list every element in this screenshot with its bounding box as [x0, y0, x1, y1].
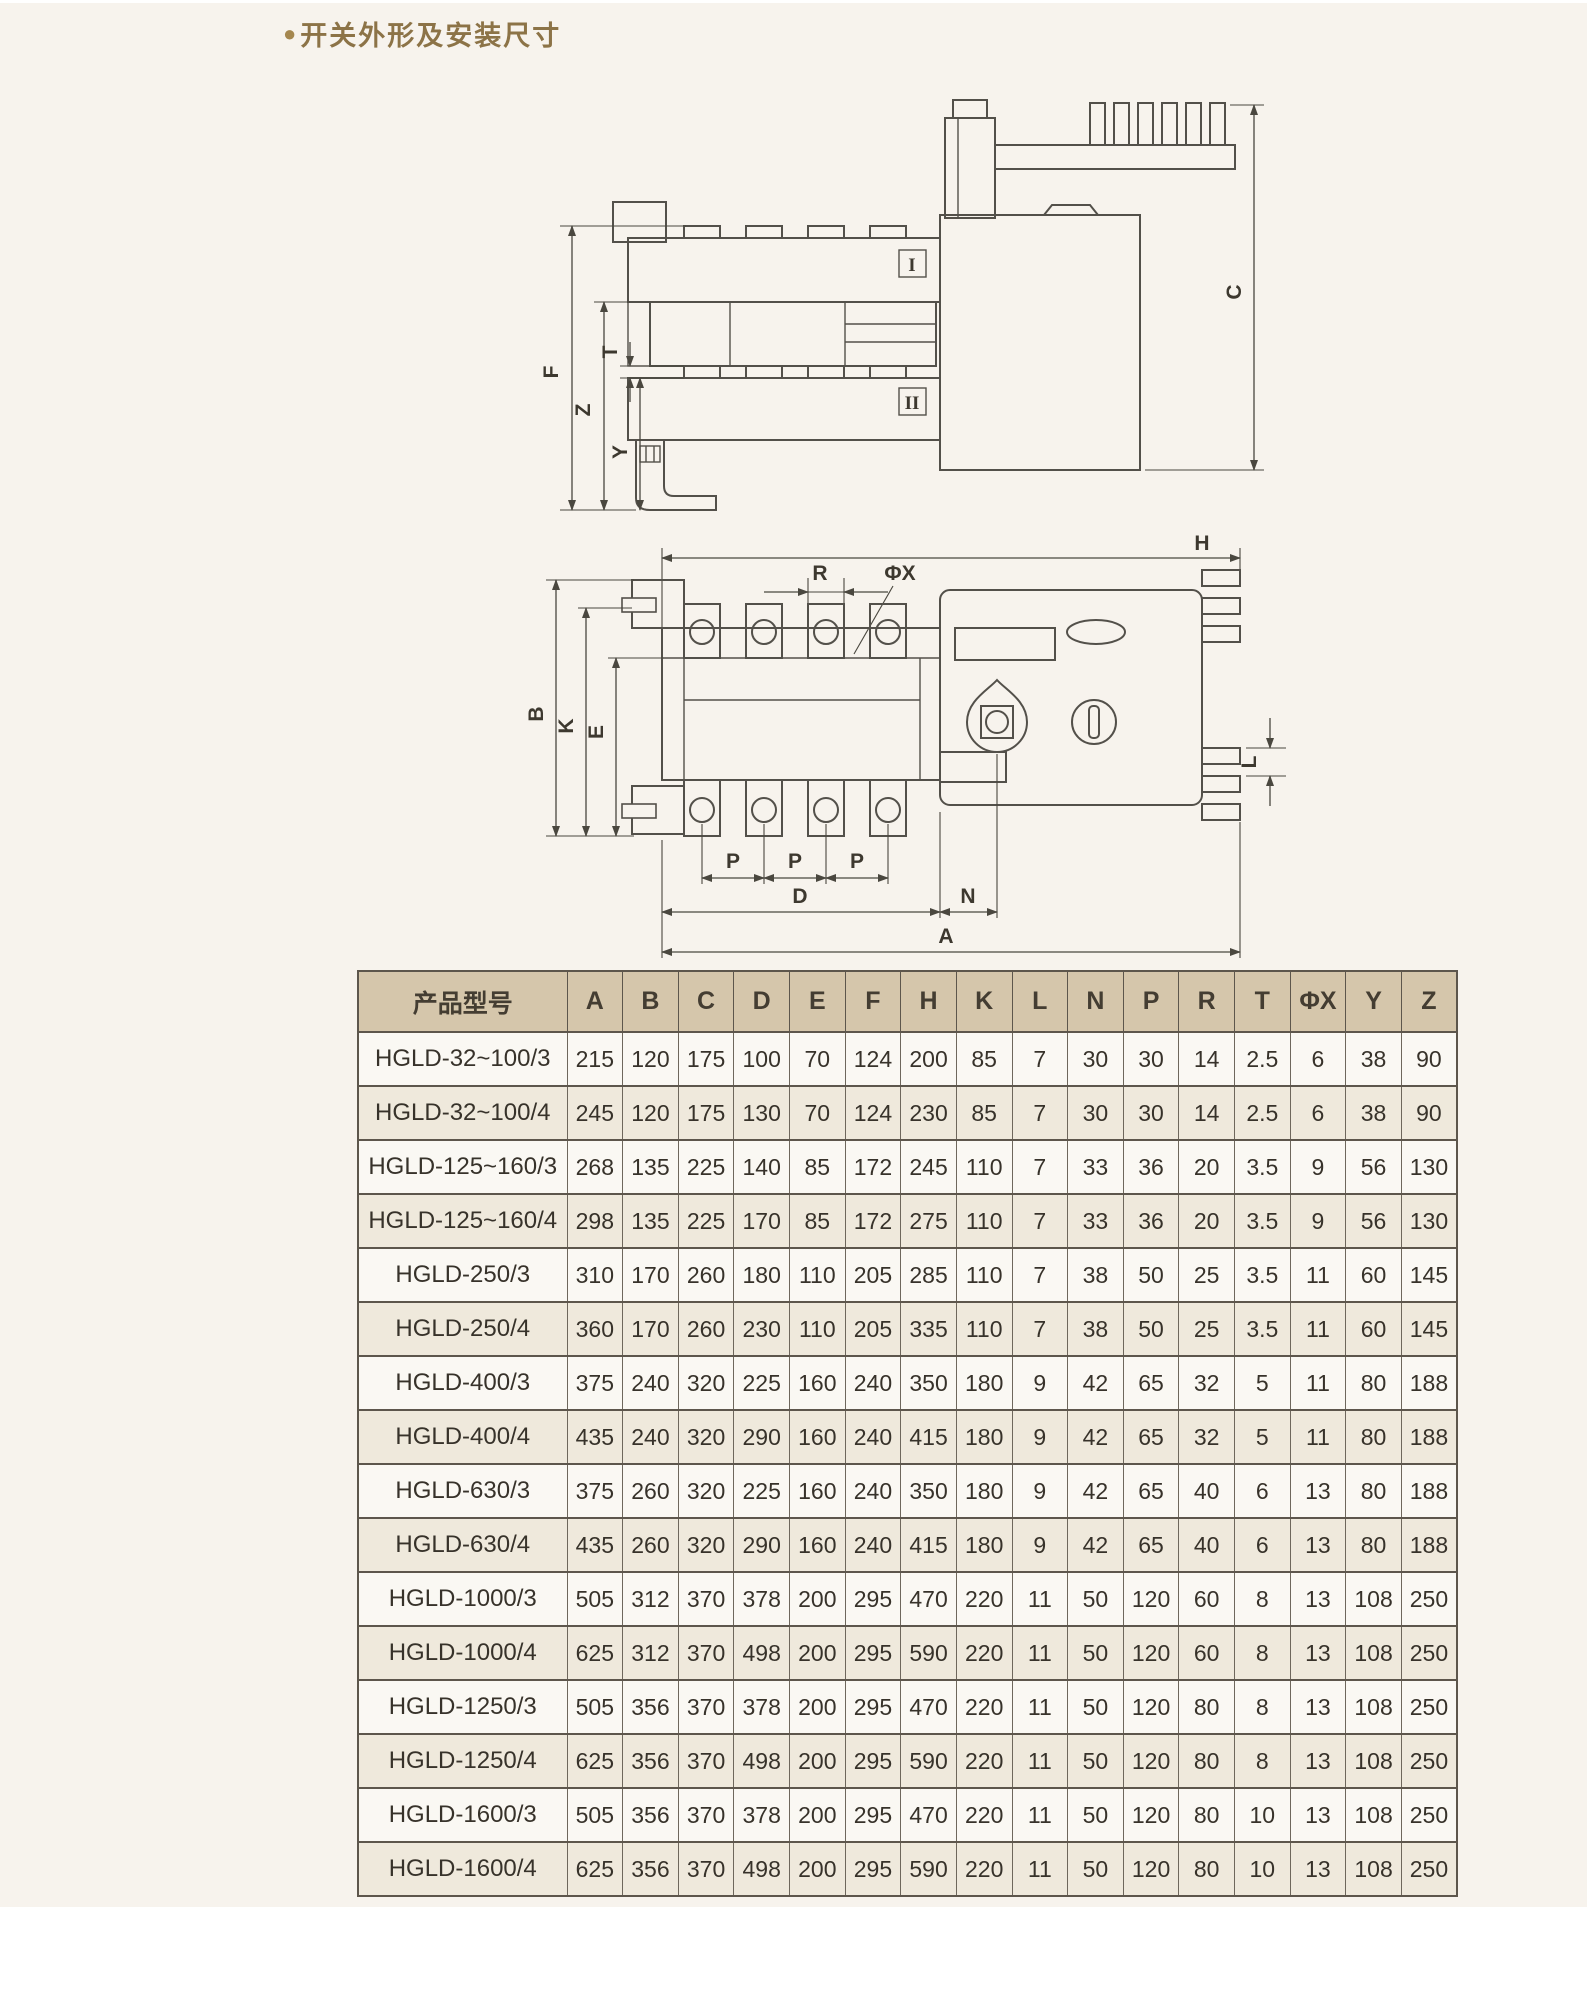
- pole1-label: I: [908, 255, 915, 276]
- value-cell: 110: [956, 1194, 1012, 1248]
- value-cell: 225: [734, 1356, 790, 1410]
- value-cell: 60: [1346, 1248, 1402, 1302]
- value-cell: 85: [790, 1194, 846, 1248]
- model-cell: HGLD-630/4: [358, 1518, 567, 1572]
- nameplate-oval: [1067, 620, 1125, 644]
- value-cell: 33: [1068, 1140, 1124, 1194]
- value-cell: 298: [567, 1194, 623, 1248]
- value-cell: 6: [1290, 1086, 1346, 1140]
- value-cell: 80: [1179, 1788, 1235, 1842]
- value-cell: 375: [567, 1464, 623, 1518]
- value-cell: 170: [623, 1302, 679, 1356]
- value-cell: 505: [567, 1572, 623, 1626]
- table-row: HGLD-630/4435260320290160240415180942654…: [358, 1518, 1457, 1572]
- value-cell: 590: [901, 1842, 957, 1896]
- value-cell: 40: [1179, 1464, 1235, 1518]
- value-cell: 200: [790, 1680, 846, 1734]
- value-cell: 11: [1012, 1626, 1068, 1680]
- value-cell: 42: [1068, 1356, 1124, 1410]
- mounting-bracket: [636, 440, 716, 510]
- value-cell: 7: [1012, 1032, 1068, 1086]
- value-cell: 108: [1346, 1680, 1402, 1734]
- value-cell: 170: [623, 1248, 679, 1302]
- value-cell: 335: [901, 1302, 957, 1356]
- value-cell: 220: [956, 1788, 1012, 1842]
- value-cell: 625: [567, 1734, 623, 1788]
- value-cell: 240: [845, 1464, 901, 1518]
- model-cell: HGLD-250/4: [358, 1302, 567, 1356]
- value-cell: 7: [1012, 1086, 1068, 1140]
- col-header: R: [1179, 971, 1235, 1032]
- value-cell: 10: [1235, 1842, 1291, 1896]
- table-row: HGLD-125~160/326813522514085172245110733…: [358, 1140, 1457, 1194]
- col-header: C: [678, 971, 734, 1032]
- value-cell: 20: [1179, 1194, 1235, 1248]
- bullet-icon: ●: [283, 21, 298, 47]
- value-cell: 65: [1123, 1356, 1179, 1410]
- model-cell: HGLD-400/3: [358, 1356, 567, 1410]
- value-cell: 275: [901, 1194, 957, 1248]
- value-cell: 170: [734, 1194, 790, 1248]
- value-cell: 85: [956, 1086, 1012, 1140]
- value-cell: 160: [790, 1464, 846, 1518]
- value-cell: 33: [1068, 1194, 1124, 1248]
- value-cell: 11: [1290, 1356, 1346, 1410]
- value-cell: 50: [1068, 1572, 1124, 1626]
- value-cell: 2.5: [1235, 1032, 1291, 1086]
- value-cell: 498: [734, 1842, 790, 1896]
- value-cell: 505: [567, 1680, 623, 1734]
- value-cell: 356: [623, 1734, 679, 1788]
- dim-label-K: K: [555, 718, 578, 733]
- value-cell: 188: [1401, 1356, 1457, 1410]
- value-cell: 120: [623, 1086, 679, 1140]
- value-cell: 13: [1290, 1842, 1346, 1896]
- value-cell: 470: [901, 1680, 957, 1734]
- table-row: HGLD-125~160/429813522517085172275110733…: [358, 1194, 1457, 1248]
- value-cell: 205: [845, 1302, 901, 1356]
- col-header: P: [1123, 971, 1179, 1032]
- section-title-text: 开关外形及安装尺寸: [300, 14, 561, 53]
- value-cell: 160: [790, 1410, 846, 1464]
- value-cell: 175: [678, 1086, 734, 1140]
- value-cell: 188: [1401, 1410, 1457, 1464]
- col-header: K: [956, 971, 1012, 1032]
- value-cell: 260: [623, 1464, 679, 1518]
- value-cell: 350: [901, 1356, 957, 1410]
- model-cell: HGLD-32~100/3: [358, 1032, 567, 1086]
- dim-label-Z: Z: [572, 403, 595, 416]
- model-cell: HGLD-125~160/3: [358, 1140, 567, 1194]
- value-cell: 200: [790, 1842, 846, 1896]
- value-cell: 220: [956, 1572, 1012, 1626]
- value-cell: 9: [1290, 1194, 1346, 1248]
- comb-terminals: [1090, 103, 1225, 145]
- model-cell: HGLD-400/4: [358, 1410, 567, 1464]
- bottom-terminals: [684, 780, 906, 836]
- technical-drawing: I II F Z T: [420, 80, 1300, 980]
- dim-label-T: T: [599, 345, 622, 358]
- value-cell: 110: [790, 1248, 846, 1302]
- value-cell: 415: [901, 1518, 957, 1572]
- dim-label-H: H: [1194, 532, 1209, 555]
- dim-label-B: B: [525, 706, 548, 721]
- value-cell: 172: [845, 1140, 901, 1194]
- value-cell: 124: [845, 1086, 901, 1140]
- col-header: L: [1012, 971, 1068, 1032]
- duct-step: [953, 100, 987, 118]
- value-cell: 124: [845, 1032, 901, 1086]
- value-cell: 250: [1401, 1626, 1457, 1680]
- value-cell: 250: [1401, 1842, 1457, 1896]
- value-cell: 370: [678, 1626, 734, 1680]
- duct-column: [945, 118, 995, 218]
- value-cell: 38: [1346, 1032, 1402, 1086]
- value-cell: 295: [845, 1680, 901, 1734]
- dim-label-N: N: [960, 885, 975, 908]
- value-cell: 8: [1235, 1572, 1291, 1626]
- value-cell: 225: [734, 1464, 790, 1518]
- value-cell: 60: [1346, 1302, 1402, 1356]
- value-cell: 11: [1012, 1734, 1068, 1788]
- value-cell: 290: [734, 1518, 790, 1572]
- value-cell: 240: [845, 1410, 901, 1464]
- value-cell: 370: [678, 1680, 734, 1734]
- value-cell: 13: [1290, 1788, 1346, 1842]
- side-view-diagram: I II F Z T: [540, 100, 1264, 510]
- value-cell: 260: [678, 1248, 734, 1302]
- col-header: Y: [1346, 971, 1402, 1032]
- value-cell: 42: [1068, 1410, 1124, 1464]
- value-cell: 135: [623, 1194, 679, 1248]
- dim-label-PhiX: ΦX: [884, 562, 915, 585]
- value-cell: 7: [1012, 1194, 1068, 1248]
- value-cell: 205: [845, 1248, 901, 1302]
- table-row: HGLD-32~100/4245120175130701242308573030…: [358, 1086, 1457, 1140]
- model-cell: HGLD-32~100/4: [358, 1086, 567, 1140]
- value-cell: 356: [623, 1680, 679, 1734]
- value-cell: 38: [1346, 1086, 1402, 1140]
- value-cell: 285: [901, 1248, 957, 1302]
- value-cell: 3.5: [1235, 1302, 1291, 1356]
- value-cell: 6: [1235, 1464, 1291, 1518]
- model-cell: HGLD-1600/3: [358, 1788, 567, 1842]
- value-cell: 80: [1346, 1464, 1402, 1518]
- value-cell: 220: [956, 1626, 1012, 1680]
- value-cell: 9: [1012, 1518, 1068, 1572]
- value-cell: 435: [567, 1410, 623, 1464]
- value-cell: 260: [623, 1518, 679, 1572]
- value-cell: 260: [678, 1302, 734, 1356]
- value-cell: 85: [790, 1140, 846, 1194]
- value-cell: 20: [1179, 1140, 1235, 1194]
- pole2-terminal-bumps: [684, 366, 906, 378]
- pole1-strip: [628, 238, 940, 302]
- value-cell: 240: [623, 1356, 679, 1410]
- value-cell: 225: [678, 1194, 734, 1248]
- controller-top-bump: [1044, 205, 1098, 215]
- col-header: D: [734, 971, 790, 1032]
- value-cell: 9: [1290, 1140, 1346, 1194]
- value-cell: 36: [1123, 1194, 1179, 1248]
- table-row: HGLD-400/3375240320225160240350180942653…: [358, 1356, 1457, 1410]
- value-cell: 9: [1012, 1464, 1068, 1518]
- value-cell: 415: [901, 1410, 957, 1464]
- value-cell: 80: [1179, 1680, 1235, 1734]
- value-cell: 50: [1068, 1680, 1124, 1734]
- value-cell: 80: [1346, 1356, 1402, 1410]
- value-cell: 370: [678, 1572, 734, 1626]
- value-cell: 215: [567, 1032, 623, 1086]
- value-cell: 3.5: [1235, 1248, 1291, 1302]
- value-cell: 135: [623, 1140, 679, 1194]
- pole2-label: II: [905, 393, 920, 414]
- value-cell: 172: [845, 1194, 901, 1248]
- table-body: HGLD-32~100/3215120175100701242008573030…: [358, 1032, 1457, 1896]
- value-cell: 290: [734, 1410, 790, 1464]
- value-cell: 310: [567, 1248, 623, 1302]
- value-cell: 200: [790, 1572, 846, 1626]
- table-row: HGLD-250/4360170260230110205335110738502…: [358, 1302, 1457, 1356]
- value-cell: 120: [1123, 1572, 1179, 1626]
- model-cell: HGLD-1000/3: [358, 1572, 567, 1626]
- value-cell: 70: [790, 1032, 846, 1086]
- value-cell: 625: [567, 1626, 623, 1680]
- handle-shaft: [967, 680, 1027, 752]
- value-cell: 470: [901, 1572, 957, 1626]
- value-cell: 11: [1012, 1572, 1068, 1626]
- dim-label-F: F: [540, 365, 563, 378]
- value-cell: 8: [1235, 1680, 1291, 1734]
- value-cell: 50: [1068, 1626, 1124, 1680]
- value-cell: 435: [567, 1518, 623, 1572]
- value-cell: 320: [678, 1410, 734, 1464]
- value-cell: 30: [1123, 1032, 1179, 1086]
- value-cell: 42: [1068, 1518, 1124, 1572]
- top-view-diagram: H R ΦX: [525, 532, 1286, 958]
- dim-label-P1: P: [726, 850, 740, 873]
- col-header: E: [790, 971, 846, 1032]
- value-cell: 80: [1346, 1518, 1402, 1572]
- value-cell: 470: [901, 1788, 957, 1842]
- dim-label-Y: Y: [609, 445, 632, 459]
- value-cell: 13: [1290, 1626, 1346, 1680]
- value-cell: 32: [1179, 1356, 1235, 1410]
- value-cell: 42: [1068, 1464, 1124, 1518]
- value-cell: 240: [845, 1356, 901, 1410]
- table-head-row: 产品型号ABCDEFHKLNPRTΦXYZ: [358, 971, 1457, 1032]
- page: { "header": { "bullet": "●", "title": "开…: [0, 0, 1587, 2003]
- value-cell: 590: [901, 1626, 957, 1680]
- value-cell: 70: [790, 1086, 846, 1140]
- value-cell: 295: [845, 1626, 901, 1680]
- dim-label-R: R: [812, 562, 827, 585]
- value-cell: 378: [734, 1572, 790, 1626]
- value-cell: 356: [623, 1842, 679, 1896]
- value-cell: 11: [1290, 1248, 1346, 1302]
- value-cell: 14: [1179, 1086, 1235, 1140]
- value-cell: 250: [1401, 1788, 1457, 1842]
- value-cell: 30: [1123, 1086, 1179, 1140]
- dim-label-C: C: [1223, 284, 1246, 299]
- table-row: HGLD-1000/462531237049820029559022011501…: [358, 1626, 1457, 1680]
- value-cell: 120: [623, 1032, 679, 1086]
- value-cell: 11: [1012, 1680, 1068, 1734]
- dim-label-D: D: [792, 885, 807, 908]
- value-cell: 145: [1401, 1302, 1457, 1356]
- value-cell: 90: [1401, 1032, 1457, 1086]
- value-cell: 130: [1401, 1140, 1457, 1194]
- value-cell: 11: [1290, 1410, 1346, 1464]
- model-cell: HGLD-1250/3: [358, 1680, 567, 1734]
- value-cell: 180: [956, 1464, 1012, 1518]
- value-cell: 180: [956, 1356, 1012, 1410]
- display-window: [955, 628, 1055, 660]
- pole2-strip: [628, 378, 940, 440]
- value-cell: 590: [901, 1734, 957, 1788]
- value-cell: 60: [1179, 1572, 1235, 1626]
- value-cell: 3.5: [1235, 1194, 1291, 1248]
- value-cell: 230: [901, 1086, 957, 1140]
- top-flange: [613, 202, 666, 242]
- value-cell: 65: [1123, 1518, 1179, 1572]
- model-cell: HGLD-125~160/4: [358, 1194, 567, 1248]
- value-cell: 370: [678, 1788, 734, 1842]
- value-cell: 120: [1123, 1842, 1179, 1896]
- value-cell: 295: [845, 1842, 901, 1896]
- model-cell: HGLD-250/3: [358, 1248, 567, 1302]
- value-cell: 7: [1012, 1302, 1068, 1356]
- value-cell: 200: [901, 1032, 957, 1086]
- value-cell: 110: [956, 1248, 1012, 1302]
- col-header: B: [623, 971, 679, 1032]
- table-row: HGLD-630/3375260320225160240350180942654…: [358, 1464, 1457, 1518]
- value-cell: 250: [1401, 1734, 1457, 1788]
- value-cell: 160: [790, 1356, 846, 1410]
- value-cell: 130: [1401, 1194, 1457, 1248]
- value-cell: 80: [1179, 1842, 1235, 1896]
- value-cell: 8: [1235, 1626, 1291, 1680]
- table-row: HGLD-1250/350535637037820029547022011501…: [358, 1680, 1457, 1734]
- value-cell: 180: [734, 1248, 790, 1302]
- value-cell: 13: [1290, 1464, 1346, 1518]
- value-cell: 180: [956, 1518, 1012, 1572]
- table-row: HGLD-1000/350531237037820029547022011501…: [358, 1572, 1457, 1626]
- value-cell: 6: [1290, 1032, 1346, 1086]
- col-header: Z: [1401, 971, 1457, 1032]
- value-cell: 250: [1401, 1680, 1457, 1734]
- col-header: N: [1068, 971, 1124, 1032]
- value-cell: 245: [567, 1086, 623, 1140]
- value-cell: 200: [790, 1626, 846, 1680]
- model-cell: HGLD-1600/4: [358, 1842, 567, 1896]
- value-cell: 378: [734, 1788, 790, 1842]
- value-cell: 5: [1235, 1410, 1291, 1464]
- value-cell: 50: [1123, 1248, 1179, 1302]
- value-cell: 32: [1179, 1410, 1235, 1464]
- value-cell: 360: [567, 1302, 623, 1356]
- value-cell: 625: [567, 1842, 623, 1896]
- value-cell: 225: [678, 1140, 734, 1194]
- value-cell: 356: [623, 1788, 679, 1842]
- value-cell: 498: [734, 1734, 790, 1788]
- dimensions-table: 产品型号ABCDEFHKLNPRTΦXYZ HGLD-32~100/321512…: [357, 970, 1458, 1897]
- value-cell: 90: [1401, 1086, 1457, 1140]
- col-header-model: 产品型号: [358, 971, 567, 1032]
- value-cell: 140: [734, 1140, 790, 1194]
- value-cell: 13: [1290, 1518, 1346, 1572]
- table-row: HGLD-32~100/3215120175100701242008573030…: [358, 1032, 1457, 1086]
- dim-label-L: L: [1238, 755, 1261, 768]
- col-header: ΦX: [1290, 971, 1346, 1032]
- value-cell: 13: [1290, 1680, 1346, 1734]
- value-cell: 312: [623, 1572, 679, 1626]
- value-cell: 6: [1235, 1518, 1291, 1572]
- value-cell: 9: [1012, 1356, 1068, 1410]
- value-cell: 30: [1068, 1086, 1124, 1140]
- value-cell: 200: [790, 1734, 846, 1788]
- value-cell: 312: [623, 1626, 679, 1680]
- top-terminals: [684, 604, 906, 658]
- value-cell: 160: [790, 1518, 846, 1572]
- castellation-bottom: [1202, 748, 1240, 820]
- value-cell: 13: [1290, 1734, 1346, 1788]
- value-cell: 108: [1346, 1734, 1402, 1788]
- value-cell: 108: [1346, 1572, 1402, 1626]
- value-cell: 370: [678, 1842, 734, 1896]
- value-cell: 50: [1068, 1842, 1124, 1896]
- value-cell: 5: [1235, 1356, 1291, 1410]
- value-cell: 60: [1179, 1626, 1235, 1680]
- col-header: H: [901, 971, 957, 1032]
- table-row: HGLD-1250/462535637049820029559022011501…: [358, 1734, 1457, 1788]
- value-cell: 25: [1179, 1248, 1235, 1302]
- value-cell: 220: [956, 1680, 1012, 1734]
- pole1-terminal-bumps: [684, 226, 906, 238]
- value-cell: 38: [1068, 1248, 1124, 1302]
- col-header: A: [567, 971, 623, 1032]
- value-cell: 188: [1401, 1518, 1457, 1572]
- value-cell: 505: [567, 1788, 623, 1842]
- value-cell: 3.5: [1235, 1140, 1291, 1194]
- dim-label-A: A: [938, 925, 953, 948]
- value-cell: 108: [1346, 1626, 1402, 1680]
- table-row: HGLD-1600/462535637049820029559022011501…: [358, 1842, 1457, 1896]
- value-cell: 110: [956, 1302, 1012, 1356]
- value-cell: 120: [1123, 1626, 1179, 1680]
- value-cell: 320: [678, 1518, 734, 1572]
- value-cell: 320: [678, 1356, 734, 1410]
- value-cell: 50: [1123, 1302, 1179, 1356]
- value-cell: 65: [1123, 1464, 1179, 1518]
- bracket-screw: [640, 446, 660, 462]
- value-cell: 120: [1123, 1734, 1179, 1788]
- value-cell: 220: [956, 1734, 1012, 1788]
- value-cell: 11: [1290, 1302, 1346, 1356]
- value-cell: 120: [1123, 1788, 1179, 1842]
- value-cell: 175: [678, 1032, 734, 1086]
- table-row: HGLD-250/3310170260180110205285110738502…: [358, 1248, 1457, 1302]
- value-cell: 56: [1346, 1140, 1402, 1194]
- value-cell: 40: [1179, 1518, 1235, 1572]
- value-cell: 188: [1401, 1464, 1457, 1518]
- duct-arm: [995, 145, 1235, 169]
- value-cell: 145: [1401, 1248, 1457, 1302]
- dim-label-P2: P: [788, 850, 802, 873]
- value-cell: 25: [1179, 1302, 1235, 1356]
- value-cell: 100: [734, 1032, 790, 1086]
- value-cell: 220: [956, 1842, 1012, 1896]
